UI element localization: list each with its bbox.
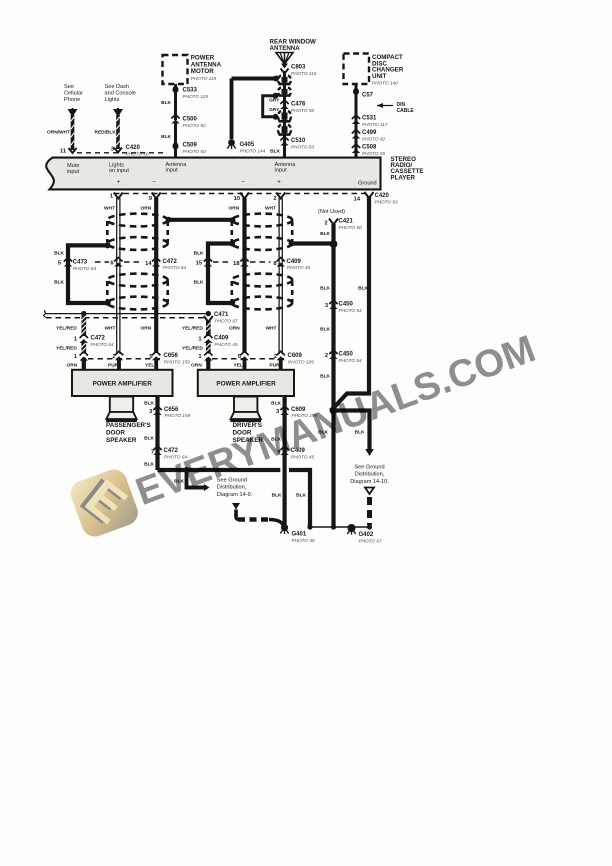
svg-text:PHOTO 64: PHOTO 64 bbox=[163, 265, 186, 270]
svg-text:C656: C656 bbox=[164, 407, 179, 413]
svg-text:BLK: BLK bbox=[194, 251, 204, 257]
svg-text:PHOTO 92: PHOTO 92 bbox=[183, 123, 206, 128]
svg-text:PHOTO 119: PHOTO 119 bbox=[191, 76, 217, 81]
svg-text:3: 3 bbox=[149, 409, 152, 415]
svg-text:C499: C499 bbox=[362, 130, 377, 136]
svg-text:YEL/RED: YEL/RED bbox=[182, 326, 203, 332]
svg-text:−: − bbox=[241, 180, 245, 186]
svg-text:3: 3 bbox=[111, 147, 114, 153]
svg-text:PHOTO 119: PHOTO 119 bbox=[183, 94, 209, 99]
svg-text:DOOR: DOOR bbox=[106, 429, 125, 436]
svg-text:PHOTO 54: PHOTO 54 bbox=[339, 308, 362, 313]
svg-text:POWER AMPLIFIER: POWER AMPLIFIER bbox=[93, 381, 153, 388]
svg-text:PHOTO 45: PHOTO 45 bbox=[215, 342, 238, 347]
svg-text:PASSENGER'S: PASSENGER'S bbox=[106, 422, 151, 429]
svg-text:PHOTO 116: PHOTO 116 bbox=[291, 71, 317, 76]
svg-text:10: 10 bbox=[234, 196, 240, 202]
svg-text:PHOTO 67: PHOTO 67 bbox=[215, 319, 238, 324]
svg-text:ORN: ORN bbox=[141, 206, 152, 212]
svg-text:3: 3 bbox=[276, 409, 279, 415]
svg-text:C531: C531 bbox=[362, 116, 377, 122]
svg-text:BLK: BLK bbox=[54, 280, 64, 286]
svg-text:PHOTO 63: PHOTO 63 bbox=[291, 145, 314, 150]
svg-text:PHOTO 64: PHOTO 64 bbox=[91, 342, 114, 347]
svg-text:BLK: BLK bbox=[54, 251, 64, 257]
svg-text:BLK: BLK bbox=[320, 327, 330, 333]
svg-text:PHOTO 46: PHOTO 46 bbox=[292, 538, 315, 543]
svg-text:PHOTO 67: PHOTO 67 bbox=[359, 539, 382, 544]
svg-text:YEL: YEL bbox=[234, 363, 243, 369]
svg-text:Ground: Ground bbox=[358, 181, 377, 187]
svg-text:ORN: ORN bbox=[141, 326, 152, 332]
svg-text:3: 3 bbox=[325, 303, 328, 309]
svg-text:C533: C533 bbox=[183, 88, 198, 94]
svg-text:+: + bbox=[277, 180, 281, 186]
svg-text:G405: G405 bbox=[240, 142, 255, 148]
svg-text:BLK: BLK bbox=[270, 149, 280, 155]
svg-text:C472: C472 bbox=[91, 336, 106, 342]
svg-text:5: 5 bbox=[58, 261, 61, 267]
svg-text:PHOTO 159: PHOTO 159 bbox=[164, 360, 190, 365]
svg-text:C510: C510 bbox=[291, 138, 306, 144]
svg-text:PHOTO 54: PHOTO 54 bbox=[339, 358, 362, 363]
svg-text:ORN: ORN bbox=[67, 363, 78, 369]
svg-text:−: − bbox=[152, 180, 156, 186]
svg-text:PHOTO 50: PHOTO 50 bbox=[339, 225, 362, 230]
svg-text:C471: C471 bbox=[214, 312, 229, 318]
svg-text:BLK: BLK bbox=[320, 374, 330, 380]
svg-text:PHOTO 117: PHOTO 117 bbox=[362, 122, 388, 127]
svg-text:C500: C500 bbox=[183, 117, 198, 123]
svg-text:15: 15 bbox=[196, 261, 202, 267]
svg-text:C803: C803 bbox=[291, 65, 306, 71]
svg-text:PHOTO 144: PHOTO 144 bbox=[240, 149, 266, 154]
svg-text:See Ground: See Ground bbox=[354, 465, 384, 471]
svg-text:C57: C57 bbox=[362, 93, 374, 99]
svg-text:1: 1 bbox=[198, 337, 201, 343]
svg-text:2: 2 bbox=[325, 353, 328, 359]
svg-text:WHT: WHT bbox=[266, 326, 277, 332]
svg-text:on input: on input bbox=[109, 168, 129, 174]
svg-text:1: 1 bbox=[74, 337, 77, 343]
svg-text:ORN/WHT: ORN/WHT bbox=[47, 130, 70, 136]
svg-text:PHOTO 109: PHOTO 109 bbox=[288, 360, 314, 365]
svg-text:PHOTO 55: PHOTO 55 bbox=[362, 151, 385, 156]
svg-text:POWER AMPLIFIER: POWER AMPLIFIER bbox=[216, 381, 276, 388]
svg-text:1: 1 bbox=[198, 354, 201, 360]
svg-text:PHOTO 159: PHOTO 159 bbox=[165, 413, 191, 418]
svg-text:WHT: WHT bbox=[105, 326, 116, 332]
svg-text:C609: C609 bbox=[288, 353, 303, 359]
svg-text:ORN: ORN bbox=[191, 363, 202, 369]
svg-text:C450: C450 bbox=[339, 352, 354, 358]
svg-text:WHT: WHT bbox=[265, 206, 276, 212]
svg-text:C409: C409 bbox=[214, 336, 229, 342]
svg-text:SPEAKER: SPEAKER bbox=[106, 437, 137, 444]
svg-text:G401: G401 bbox=[292, 532, 307, 538]
svg-text:C472: C472 bbox=[164, 448, 179, 454]
svg-text:YEL/RED: YEL/RED bbox=[182, 346, 203, 352]
svg-text:C473: C473 bbox=[73, 260, 88, 266]
svg-text:G402: G402 bbox=[359, 532, 374, 538]
svg-text:ORN: ORN bbox=[229, 326, 240, 332]
svg-text:BLK: BLK bbox=[320, 286, 330, 292]
svg-text:C421: C421 bbox=[339, 219, 354, 225]
svg-text:PUR: PUR bbox=[270, 363, 281, 369]
svg-text:2: 2 bbox=[273, 196, 276, 202]
svg-text:1: 1 bbox=[110, 194, 113, 200]
svg-text:(Not Used): (Not Used) bbox=[318, 209, 345, 215]
svg-text:ANTENNA: ANTENNA bbox=[270, 45, 301, 52]
svg-text:BLK: BLK bbox=[144, 401, 154, 407]
svg-text:input: input bbox=[166, 168, 179, 174]
svg-text:input: input bbox=[67, 169, 80, 175]
svg-text:Distribution,: Distribution, bbox=[355, 472, 385, 478]
svg-text:BLK: BLK bbox=[161, 100, 171, 106]
svg-text:18: 18 bbox=[233, 261, 239, 267]
svg-text:14: 14 bbox=[145, 261, 152, 267]
svg-text:and Console: and Console bbox=[105, 90, 136, 96]
svg-text:C508: C508 bbox=[362, 145, 377, 151]
svg-text:C509: C509 bbox=[183, 143, 198, 149]
svg-text:CABLE: CABLE bbox=[397, 108, 415, 114]
svg-text:ORN: ORN bbox=[229, 206, 240, 212]
svg-text:PHOTO 140: PHOTO 140 bbox=[372, 81, 398, 86]
svg-text:MOTOR: MOTOR bbox=[191, 68, 214, 75]
svg-text:Diagram 14-9.: Diagram 14-9. bbox=[217, 492, 253, 498]
svg-text:PLAYER: PLAYER bbox=[391, 174, 416, 181]
svg-text:7: 7 bbox=[151, 450, 154, 456]
svg-text:C420: C420 bbox=[126, 145, 141, 151]
svg-text:11: 11 bbox=[60, 149, 66, 155]
svg-text:YEL/RED: YEL/RED bbox=[56, 346, 77, 352]
svg-text:PHOTO 92: PHOTO 92 bbox=[291, 108, 314, 113]
svg-text:PHOTO 93: PHOTO 93 bbox=[375, 200, 398, 205]
svg-text:PHOTO 45: PHOTO 45 bbox=[287, 265, 310, 270]
svg-text:YEL/RED: YEL/RED bbox=[56, 326, 77, 332]
svg-text:+: + bbox=[117, 180, 121, 186]
svg-text:See Dash: See Dash bbox=[105, 84, 130, 90]
svg-text:YEL: YEL bbox=[145, 363, 154, 369]
svg-text:1: 1 bbox=[74, 354, 77, 360]
svg-text:BLK: BLK bbox=[358, 286, 368, 292]
svg-text:C420: C420 bbox=[375, 193, 390, 199]
svg-text:BLK: BLK bbox=[272, 493, 282, 499]
svg-text:Lights: Lights bbox=[105, 97, 120, 103]
svg-text:WHT: WHT bbox=[104, 206, 115, 212]
svg-text:BLK: BLK bbox=[296, 493, 306, 499]
svg-text:BLK: BLK bbox=[194, 280, 204, 286]
svg-text:PHOTO 50: PHOTO 50 bbox=[126, 152, 149, 157]
svg-text:C476: C476 bbox=[291, 102, 306, 108]
svg-text:6: 6 bbox=[110, 261, 113, 267]
svg-text:Phone: Phone bbox=[64, 97, 80, 103]
svg-text:BLK: BLK bbox=[320, 231, 330, 237]
svg-text:GRY: GRY bbox=[269, 97, 280, 103]
svg-text:Cellular: Cellular bbox=[64, 90, 83, 96]
svg-text:Diagram 14-10.: Diagram 14-10. bbox=[350, 479, 389, 485]
svg-text:BLK: BLK bbox=[144, 436, 154, 442]
svg-text:Mute: Mute bbox=[67, 163, 79, 169]
svg-text:BLK: BLK bbox=[161, 134, 171, 140]
svg-text:RED/BLK: RED/BLK bbox=[95, 130, 117, 136]
svg-text:8: 8 bbox=[273, 261, 276, 267]
svg-text:2: 2 bbox=[324, 221, 327, 227]
svg-text:C656: C656 bbox=[164, 353, 179, 359]
svg-text:PHOTO 92: PHOTO 92 bbox=[362, 137, 385, 142]
svg-text:input: input bbox=[275, 168, 288, 174]
svg-text:9: 9 bbox=[149, 196, 152, 202]
svg-text:BLK: BLK bbox=[271, 401, 281, 407]
svg-text:PHOTO 64: PHOTO 64 bbox=[73, 266, 96, 271]
svg-text:UNIT: UNIT bbox=[372, 73, 387, 80]
svg-text:See: See bbox=[64, 84, 74, 90]
svg-text:14: 14 bbox=[354, 197, 361, 203]
svg-text:C450: C450 bbox=[339, 302, 354, 308]
svg-text:PHOTO 50: PHOTO 50 bbox=[183, 149, 206, 154]
